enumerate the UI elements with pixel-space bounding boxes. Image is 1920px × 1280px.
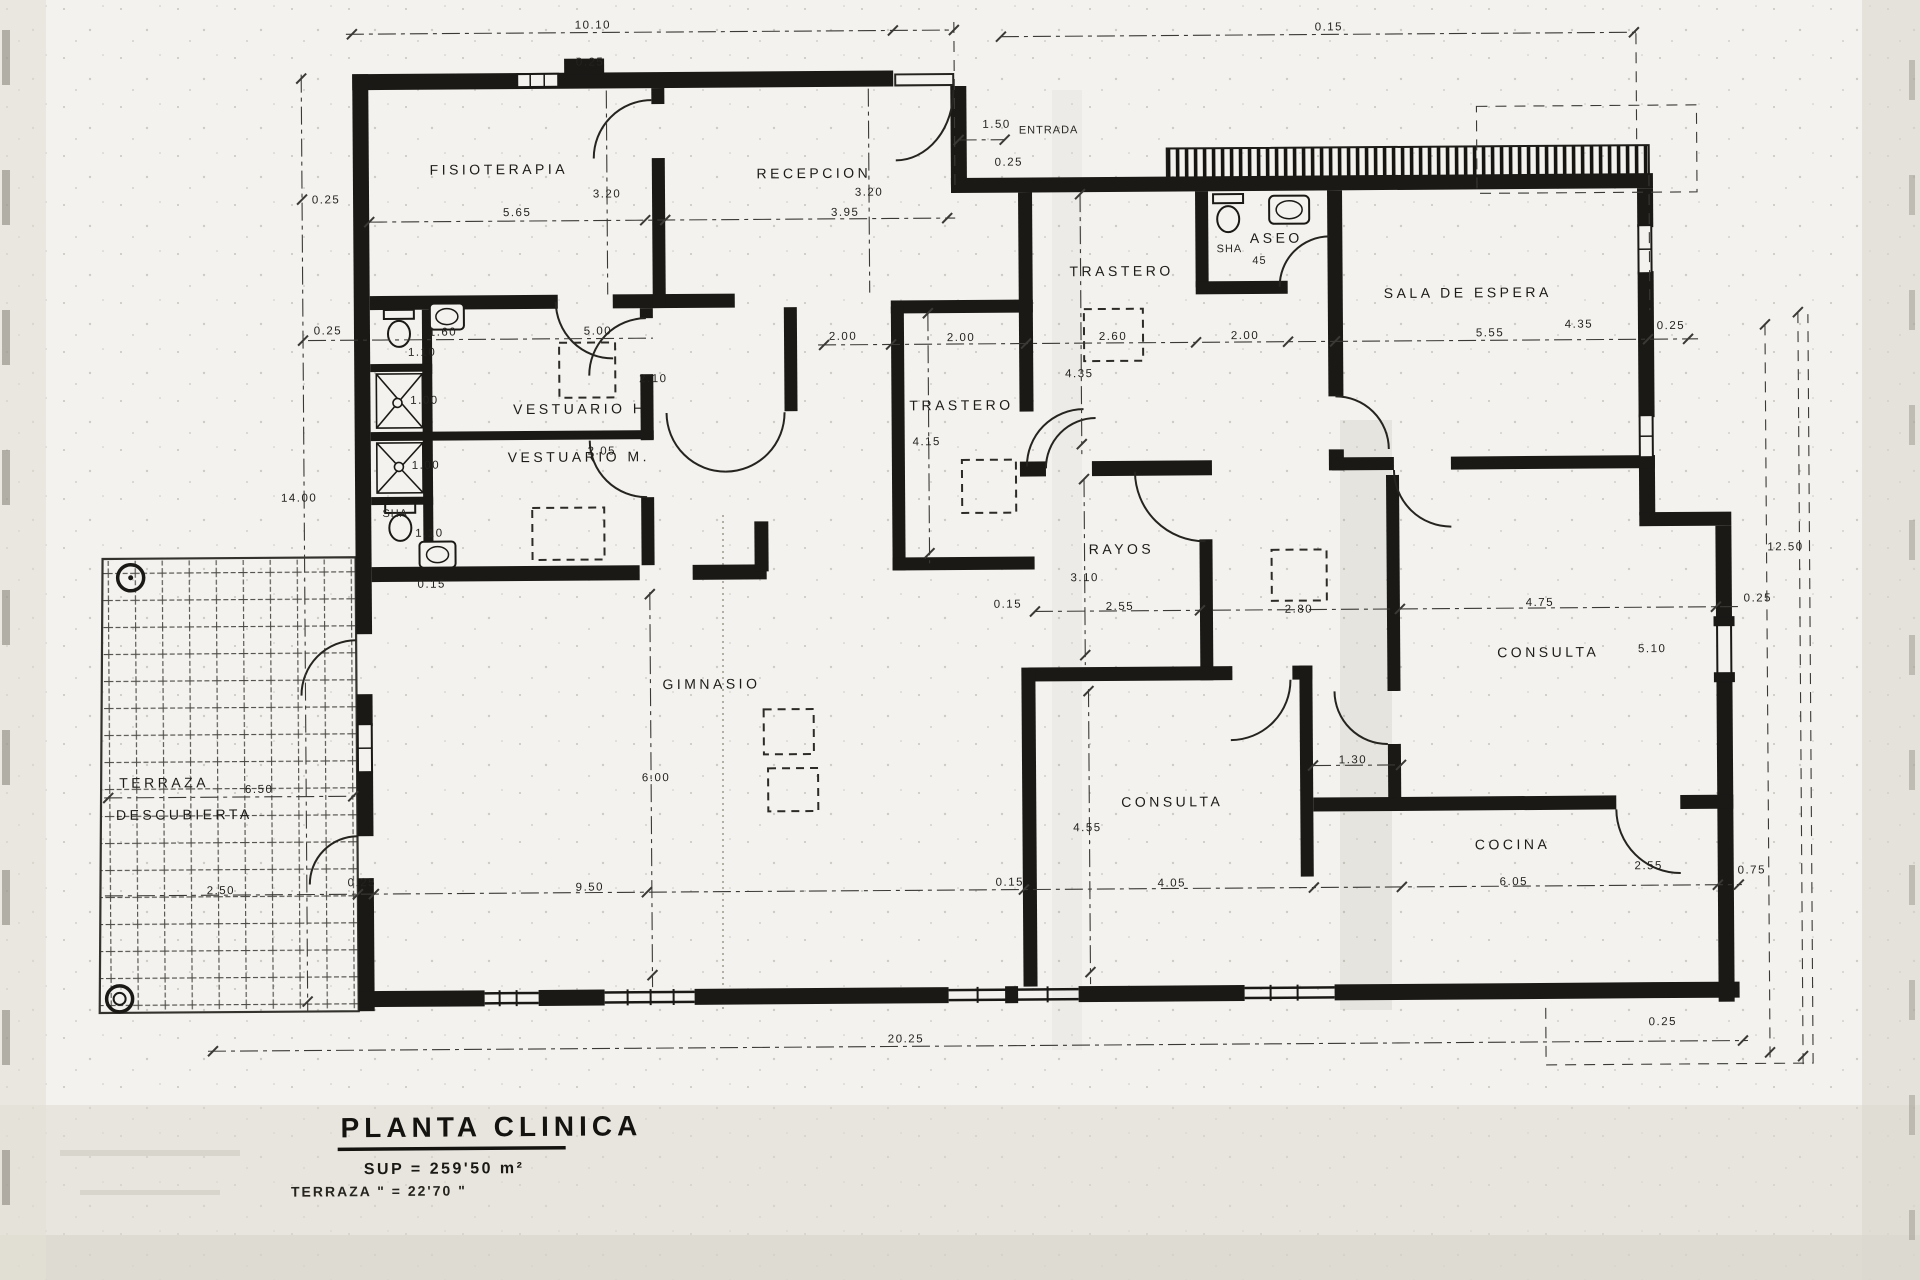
dim-5-55: 5.55 (1476, 327, 1504, 339)
dim-2-80: 2.80 (1285, 604, 1313, 616)
window-west (358, 724, 372, 772)
dim-2-00: 2.00 (1231, 330, 1259, 342)
room-rayos: RAYOS (1089, 541, 1155, 557)
dim-5-00: 5.00 (584, 325, 612, 337)
dim-4-75: 4.75 (1526, 597, 1554, 609)
dim-0-15: 0.15 (418, 579, 446, 591)
dim-2-00: 2.00 (829, 331, 857, 343)
dim-4-35: 4.35 (1565, 319, 1593, 331)
dim-2-50: 2.50 (207, 885, 235, 897)
dim-0-75: 0.75 (1738, 864, 1766, 876)
dim-4-15: 4.15 (913, 436, 941, 448)
plan-title: PLANTA CLINICA (340, 1110, 642, 1143)
dim-1-10: 1.10 (415, 528, 443, 540)
dim-2-55: 2.55 (1106, 601, 1134, 613)
dim-1-10: 1.10 (408, 347, 436, 359)
dim-6-50: 6.50 (245, 784, 273, 796)
window-east-2 (1640, 415, 1653, 457)
window-east-3 (1714, 617, 1734, 682)
dim-4-55: 4.55 (1073, 822, 1101, 834)
room-vestuario-h-: VESTUARIO H. (513, 400, 654, 417)
dim-2-60: 2.60 (1099, 331, 1127, 343)
dim-4-35: 4.35 (1065, 368, 1093, 380)
room-consulta: CONSULTA (1121, 793, 1223, 810)
dim-0-15: 0.15 (996, 877, 1024, 889)
entrance-door-leaf (895, 74, 953, 85)
room-cocina: COCINA (1475, 836, 1551, 853)
dim-14-00: 14.00 (281, 492, 317, 504)
room-vestuario-m-: VESTUARIO M. (508, 448, 650, 465)
dim-0-25: 0.25 (1744, 592, 1772, 604)
room-fisioterapia: FISIOTERAPIA (430, 161, 569, 178)
dim-1-60: 1.60 (429, 327, 457, 339)
annot-sha: SHA (382, 508, 408, 520)
dim-3-95: 3.95 (831, 207, 859, 219)
room-descubierta: DESCUBIERTA (116, 806, 253, 823)
dim-2-00: 2.00 (947, 332, 975, 344)
dim-1-00: 1.00 (412, 460, 440, 472)
dim-12-50: 12.50 (1767, 541, 1803, 553)
sink-lower-wc (419, 542, 455, 568)
floor-plan-canvas: FISIOTERAPIARECEPCIONTRASTEROASEOSALA DE… (0, 0, 1920, 1280)
room-consulta: CONSULTA (1497, 644, 1599, 661)
dim-0-25: 0.25 (348, 877, 376, 889)
dim-20-25: 20.25 (888, 1033, 924, 1045)
entrance-walkway-hatch (1167, 145, 1649, 178)
dim-0-25: 0.25 (576, 56, 604, 68)
dim-6-00: 6.00 (642, 772, 670, 784)
plan-area-text: SUP = 259'50 m² (364, 1160, 525, 1178)
dim-1-30: 1.30 (1339, 754, 1367, 766)
annot-entrada: ENTRADA (1019, 124, 1079, 136)
dim-3-20: 3.20 (855, 187, 883, 199)
room-gimnasio: GIMNASIO (662, 675, 760, 692)
room-sala-de-espera: SALA DE ESPERA (1384, 284, 1552, 301)
dim-0-25: 0.25 (995, 157, 1023, 169)
window-north (517, 74, 558, 87)
dim-3-20: 3.20 (593, 188, 621, 200)
sink-aseo (1269, 196, 1309, 224)
dim-2-05: 2.05 (588, 445, 616, 457)
dim-0-25: 0.25 (312, 194, 340, 206)
room-trastero: TRASTERO (1069, 262, 1173, 279)
dim-0-15: 0.15 (994, 599, 1022, 611)
annot-sha: SHA (1217, 243, 1243, 255)
dim-0-15: 0.15 (1315, 21, 1343, 33)
dim-5-10: 5.10 (1638, 643, 1666, 655)
dim-0-25: 0.25 (1649, 1016, 1677, 1028)
dim-6-05: 6.05 (1500, 876, 1528, 888)
dim-1-00: 1.00 (410, 395, 438, 407)
dim-3-10: 3.10 (1070, 572, 1098, 584)
room-recepcion: RECEPCION (756, 165, 871, 182)
dim-2-10: 2.10 (639, 373, 667, 385)
dim-0-25: 0.25 (1657, 320, 1685, 332)
dim-5-65: 5.65 (503, 207, 531, 219)
dim-1-50: 1.50 (982, 119, 1010, 131)
annot-45: 45 (1252, 255, 1266, 267)
room-aseo: ASEO (1250, 230, 1303, 246)
dim-4-05: 4.05 (1158, 877, 1186, 889)
dim-2-55: 2.55 (1634, 860, 1662, 872)
room-terraza: TERRAZA (119, 774, 209, 791)
room-trastero: TRASTERO (909, 397, 1013, 414)
dim-0-25: 0.25 (314, 325, 342, 337)
plan-terrace-area-text: TERRAZA " = 22'70 " (291, 1182, 467, 1199)
dim-9-50: 9.50 (576, 881, 604, 893)
dim-10-10: 10.10 (575, 19, 611, 31)
scanned-floorplan-page: FISIOTERAPIARECEPCIONTRASTEROASEOSALA DE… (0, 0, 1920, 1280)
